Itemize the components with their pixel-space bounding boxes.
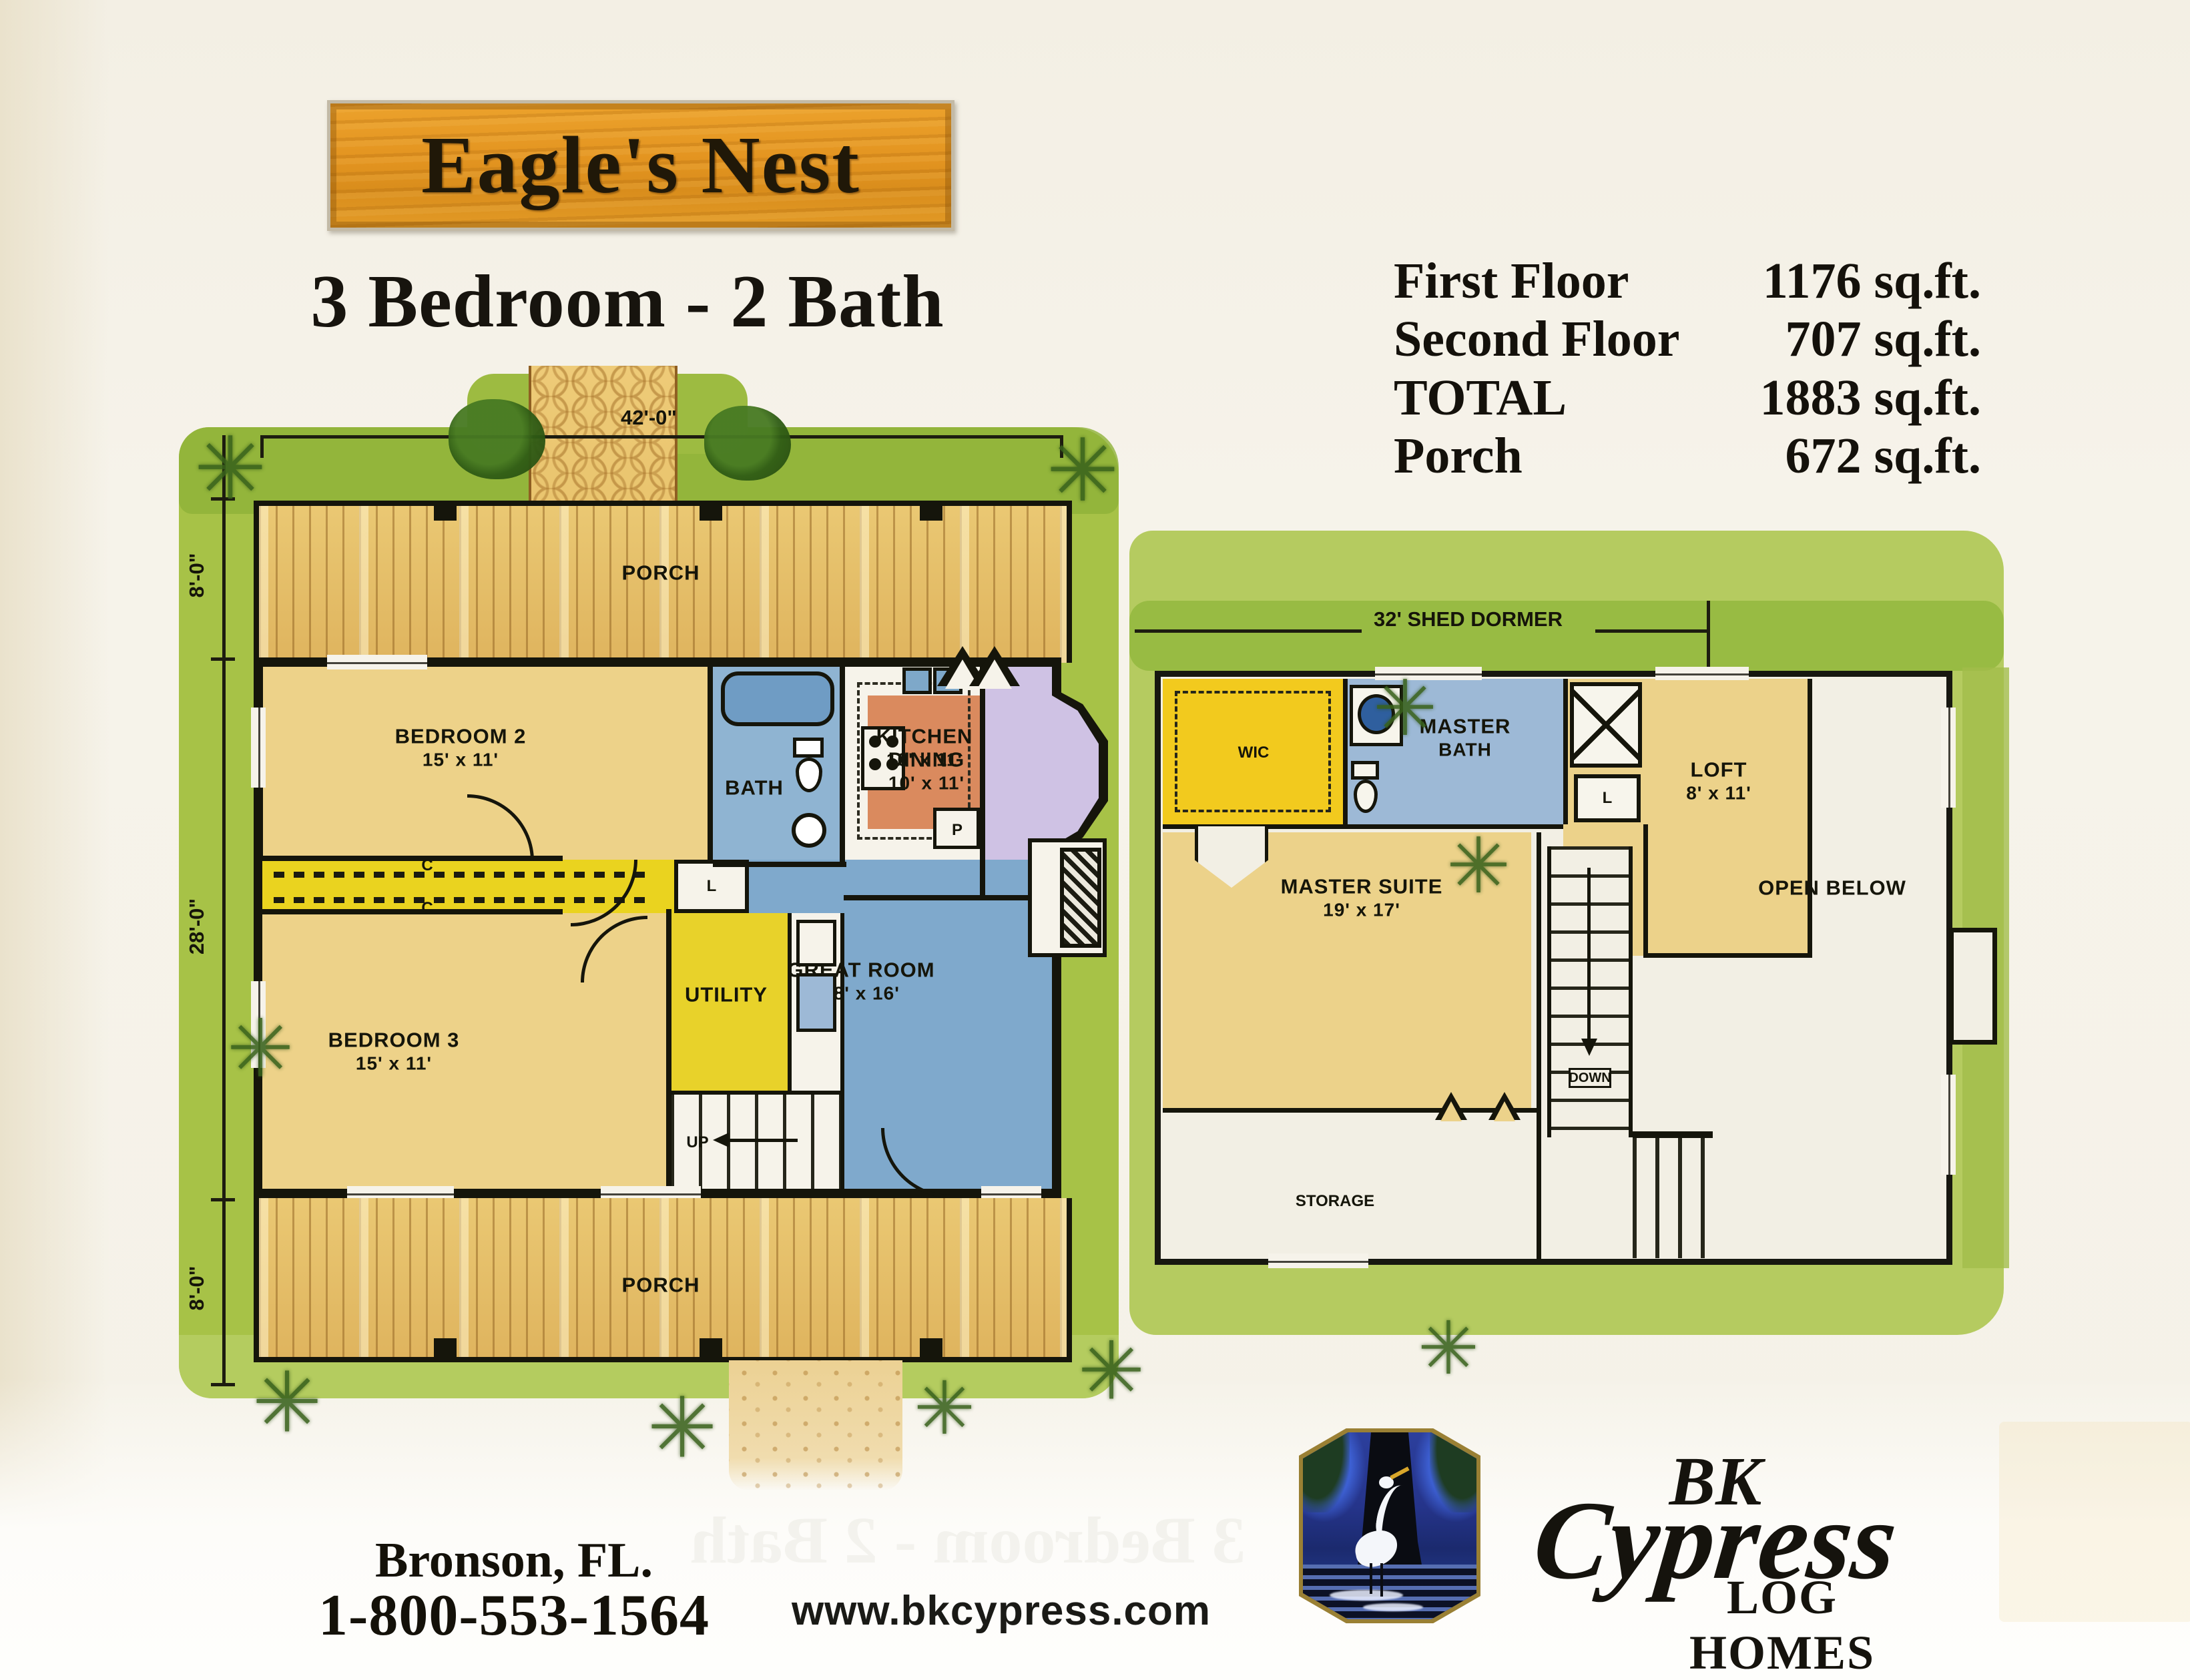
water-ripple: [1363, 1603, 1423, 1611]
dryer: [796, 973, 836, 1032]
loft-label: LOFT 8' x 11': [1686, 758, 1751, 805]
stair-rail: [1633, 1131, 1713, 1138]
window: [1941, 1075, 1956, 1175]
knee-window-icon: [1440, 1101, 1462, 1121]
dimension-tick: [211, 1198, 235, 1201]
bush-icon: [704, 406, 791, 481]
water-ripple: [1330, 1590, 1403, 1601]
wall: [840, 667, 845, 867]
stats-table: First Floor 1176 sq.ft. Second Floor 707…: [1394, 252, 1981, 486]
bathtub: [721, 671, 834, 726]
wall: [980, 667, 985, 899]
palm-tree-icon: ✳: [1078, 1326, 1145, 1418]
dimension-line-depth: [222, 435, 226, 1386]
shower: [1570, 682, 1642, 768]
dimension-porch-top-label: 8'-0": [185, 553, 209, 598]
egret-leg: [1380, 1563, 1383, 1597]
window: [1268, 1253, 1368, 1268]
wall: [1643, 824, 1648, 958]
stairs-down-label: DOWN: [1569, 1068, 1611, 1088]
stairs-down-arrow: [1587, 868, 1591, 1041]
window: [1655, 667, 1749, 680]
palm-tree-icon: ✳: [194, 418, 267, 519]
porch-bottom-label: PORCH: [622, 1272, 700, 1297]
stat-label: First Floor: [1394, 252, 1629, 310]
bedroom2-label: BEDROOM 2 15' x 11': [395, 724, 527, 772]
master-suite-label: MASTER SUITE 19' x 17': [1281, 874, 1443, 922]
egret-leg: [1370, 1563, 1372, 1594]
open-below-label: OPEN BELOW: [1758, 875, 1906, 900]
stat-label: Second Floor: [1394, 310, 1680, 368]
wall: [1537, 832, 1541, 1259]
footer-city: Bronson, FL.: [280, 1532, 748, 1589]
wall: [1808, 679, 1812, 958]
stairs-up-label: UP: [686, 1133, 708, 1152]
stat-row-first-floor: First Floor 1176 sq.ft.: [1394, 252, 1981, 310]
stairs-down-arrowhead: [1581, 1039, 1597, 1056]
wall: [713, 862, 846, 867]
brochure-page: Eagle's Nest 3 Bedroom - 2 Bath First Fl…: [0, 0, 2190, 1680]
dining-label: DINING 10' x 11': [888, 748, 965, 795]
stat-row-porch: Porch 672 sq.ft.: [1394, 427, 1981, 485]
palm-tree-icon: ✳: [647, 1380, 718, 1477]
lawn-wash: [1129, 601, 2004, 671]
bleed-through-sign: [1999, 1422, 2190, 1622]
storage-label: STORAGE: [1296, 1192, 1374, 1211]
stair-balusters: [1633, 1138, 1713, 1258]
wall: [1343, 679, 1348, 824]
wic-label: WIC: [1238, 744, 1270, 762]
porch-post: [920, 501, 942, 521]
wall: [844, 895, 1052, 900]
dimension-line-width: [260, 435, 1063, 439]
wall: [671, 1091, 843, 1095]
stat-label: Porch: [1394, 427, 1523, 485]
wall: [666, 909, 671, 1189]
french-door-icon: [977, 659, 1012, 689]
bath-label: BATH: [725, 775, 784, 800]
palm-tree-icon: ✳: [1446, 822, 1511, 911]
footer-website: www.bkcypress.com: [774, 1587, 1228, 1635]
stat-value: 1883 sq.ft.: [1760, 369, 1981, 427]
bk-cypress-logo: [1299, 1428, 1480, 1623]
linen-label: L: [707, 877, 717, 896]
bush-icon: [449, 399, 545, 479]
window: [251, 708, 266, 788]
porch-top-label: PORCH: [622, 560, 700, 585]
palm-tree-icon: ✳: [252, 1355, 322, 1452]
stat-row-total: TOTAL 1883 sq.ft.: [1394, 369, 1981, 427]
wall: [840, 913, 844, 1189]
page-title: Eagle's Nest: [421, 119, 860, 212]
toilet-tank: [1351, 761, 1379, 780]
footer-phone: 1-800-553-1564: [267, 1582, 761, 1649]
subtitle: 3 Bedroom - 2 Bath: [230, 259, 1025, 345]
palm-tree-icon: ✳: [1047, 420, 1119, 521]
palm-tree-icon: ✳: [227, 1003, 294, 1096]
wall: [1163, 1108, 1537, 1113]
sand-path: [729, 1360, 902, 1490]
porch-post: [434, 501, 457, 521]
wall: [708, 667, 713, 862]
kitchen-sink: [902, 667, 932, 694]
palm-tree-icon: ✳: [1418, 1306, 1479, 1391]
logo-foliage: [1303, 1432, 1350, 1512]
dimension-porch-bottom-label: 8'-0": [185, 1266, 209, 1311]
dormer-dim-label: 32' SHED DORMER: [1374, 607, 1563, 631]
porch-post: [700, 501, 722, 521]
palm-tree-icon: ✳: [914, 1366, 975, 1451]
stairs-arrow: [718, 1139, 798, 1142]
dormer-dim-line: [1595, 629, 1709, 633]
wall: [262, 909, 563, 914]
dimension-tick: [211, 657, 235, 661]
stat-label: TOTAL: [1394, 369, 1567, 427]
pantry-label: P: [952, 821, 963, 840]
dormer-dim-line: [1135, 629, 1362, 633]
dormer-dim-tick: [1707, 601, 1710, 677]
wall: [1643, 953, 1810, 958]
fireplace-icon: [1060, 848, 1101, 948]
chimney-bump: [1949, 928, 1997, 1045]
stat-row-second-floor: Second Floor 707 sq.ft.: [1394, 310, 1981, 368]
porch-post: [700, 1338, 722, 1358]
closet-label: C: [421, 856, 433, 875]
logo-scene: [1303, 1432, 1476, 1619]
closet-label: C: [421, 899, 433, 918]
dimension-depth-label: 28'-0": [185, 898, 209, 954]
dimension-width-label: 42'-0": [621, 406, 677, 430]
wall: [1563, 679, 1568, 824]
linen-label-2: L: [1603, 789, 1613, 808]
logo-foliage: [1430, 1432, 1476, 1512]
bath-sink: [792, 813, 826, 848]
washer: [796, 920, 836, 966]
toilet-tank: [793, 738, 824, 758]
window: [1941, 708, 1956, 808]
stairs-arrowhead: [713, 1133, 729, 1147]
window: [327, 655, 427, 669]
stat-value: 672 sq.ft.: [1786, 427, 1981, 485]
logo-tagline: LOG HOMES: [1649, 1570, 1916, 1680]
utility-label: UTILITY: [685, 982, 768, 1007]
title-sign: Eagle's Nest: [327, 100, 954, 231]
knee-window-icon: [1494, 1101, 1515, 1121]
porch-post: [920, 1338, 942, 1358]
stat-value: 707 sq.ft.: [1786, 310, 1981, 368]
stat-value: 1176 sq.ft.: [1763, 252, 1981, 310]
bedroom3-label: BEDROOM 3 15' x 11': [328, 1028, 460, 1075]
dimension-tick: [211, 1383, 235, 1386]
palm-tree-icon: ✳: [1373, 664, 1437, 754]
porch-post: [434, 1338, 457, 1358]
